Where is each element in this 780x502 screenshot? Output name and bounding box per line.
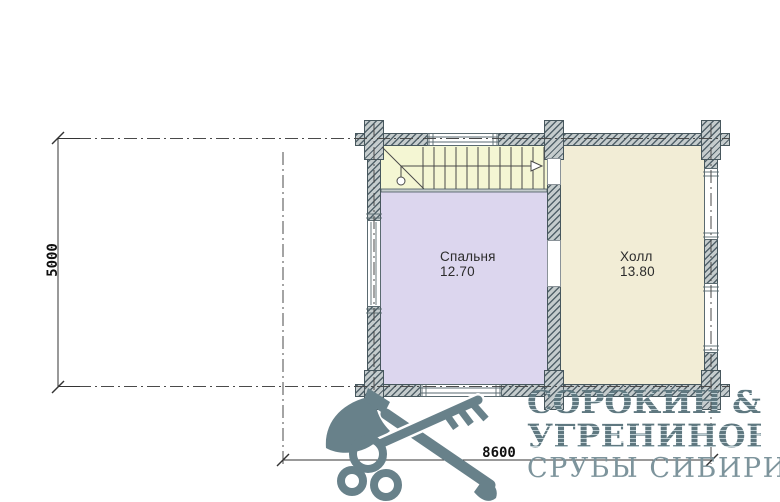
- logo-tagline: СРУБЫ СИБИРИ: [527, 453, 761, 485]
- logo-text-block: СОРОКИН & УГРЕНИНОВ СРУБЫ СИБИРИ: [527, 386, 761, 485]
- stairs-symbol: [381, 147, 547, 192]
- bedroom-area: 12.70: [440, 264, 496, 279]
- hall-label: Холл 13.80: [620, 249, 655, 279]
- logo-surname-2: УГРЕНИНОВ: [527, 419, 761, 453]
- window-frame-lines: [366, 133, 719, 397]
- floor-plan-drawing: Спальня 12.70 Холл 13.80 5000 8600: [0, 0, 780, 502]
- logo-ampersand: &: [732, 386, 761, 419]
- hall-name: Холл: [620, 249, 655, 264]
- bedroom-name: Спальня: [440, 249, 496, 264]
- hall-area: 13.80: [620, 264, 655, 279]
- axe-and-key-logo-icon: [298, 386, 522, 502]
- logo-name-line-1: СОРОКИН &: [527, 386, 761, 419]
- bedroom-label: Спальня 12.70: [440, 249, 496, 279]
- logo-surname-1: СОРОКИН: [527, 386, 722, 419]
- dimension-vertical-5000: 5000: [45, 230, 61, 290]
